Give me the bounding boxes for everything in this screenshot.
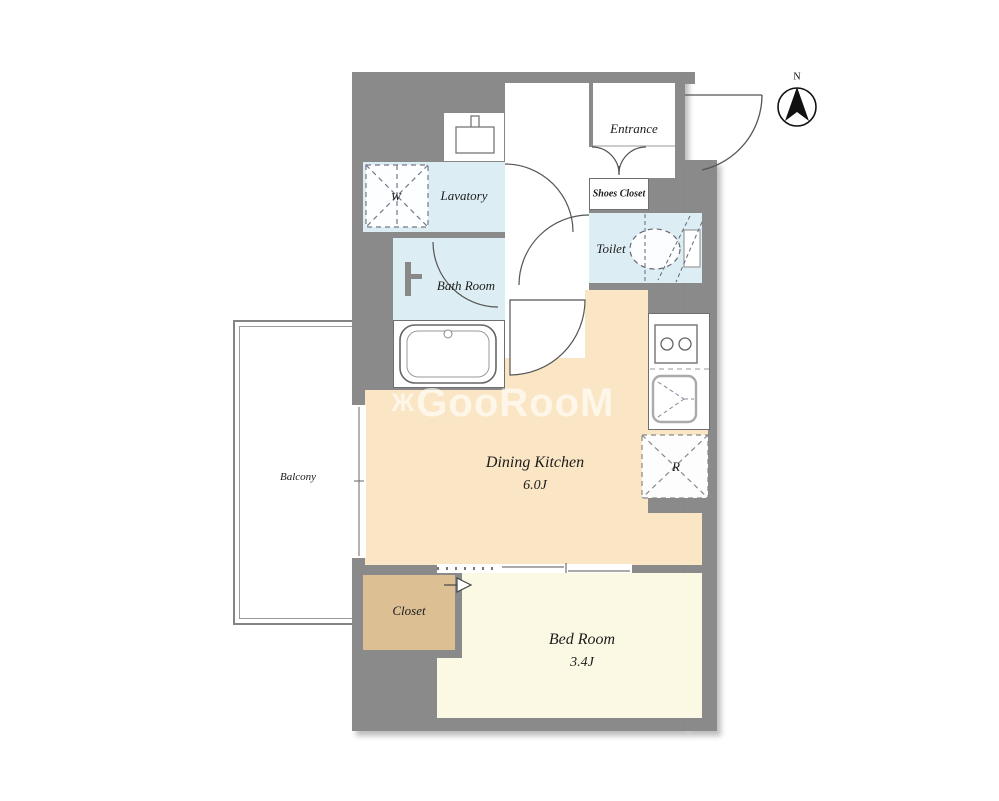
dining-kitchen-label: Dining Kitchen	[486, 454, 584, 472]
sliding-door-lines	[502, 563, 630, 573]
kitchen-sink-icon	[653, 376, 696, 422]
entrance-door-arc-icon	[685, 95, 762, 170]
watermark: Ж GooRooM	[392, 383, 615, 423]
bath-room-label: Bath Room	[437, 278, 495, 294]
washbasin-icon	[456, 116, 494, 153]
lavatory-door-arc-icon	[505, 164, 573, 232]
closet-label: Closet	[392, 603, 425, 619]
compass-icon	[778, 87, 816, 126]
shower-fixture-icon	[405, 262, 422, 296]
dining-kitchen-door-arc-icon	[510, 300, 585, 375]
watermark-text: GooRooM	[416, 383, 614, 423]
toilet-label: Toilet	[596, 241, 625, 257]
balcony-window-lines	[354, 407, 364, 556]
washing-machine-label: W	[391, 190, 401, 205]
shoes-closet-doors-icon	[592, 147, 646, 175]
compass-north-label: N	[793, 72, 800, 83]
bed-room-size-label: 3.4J	[570, 655, 594, 671]
shoes-closet-label: Shoes Closet	[593, 189, 646, 200]
lavatory-label: Lavatory	[441, 188, 488, 204]
closet-folding-door-icon	[444, 578, 471, 592]
floorplan-canvas: Entrance Shoes Closet Lavatory W Toilet …	[0, 0, 999, 801]
entrance-label: Entrance	[610, 121, 658, 137]
watermark-logo-icon: Ж	[392, 391, 415, 416]
toilet-icon	[630, 214, 702, 282]
bath-door-arc-icon	[433, 242, 498, 307]
dining-kitchen-size-label: 6.0J	[523, 478, 547, 494]
toilet-door-arc-icon	[519, 215, 589, 285]
balcony-label: Balcony	[280, 471, 316, 483]
bathtub-icon	[400, 325, 496, 383]
refrigerator-label: R	[672, 459, 680, 475]
bed-room-label: Bed Room	[549, 631, 615, 649]
stove-icon	[655, 325, 697, 363]
